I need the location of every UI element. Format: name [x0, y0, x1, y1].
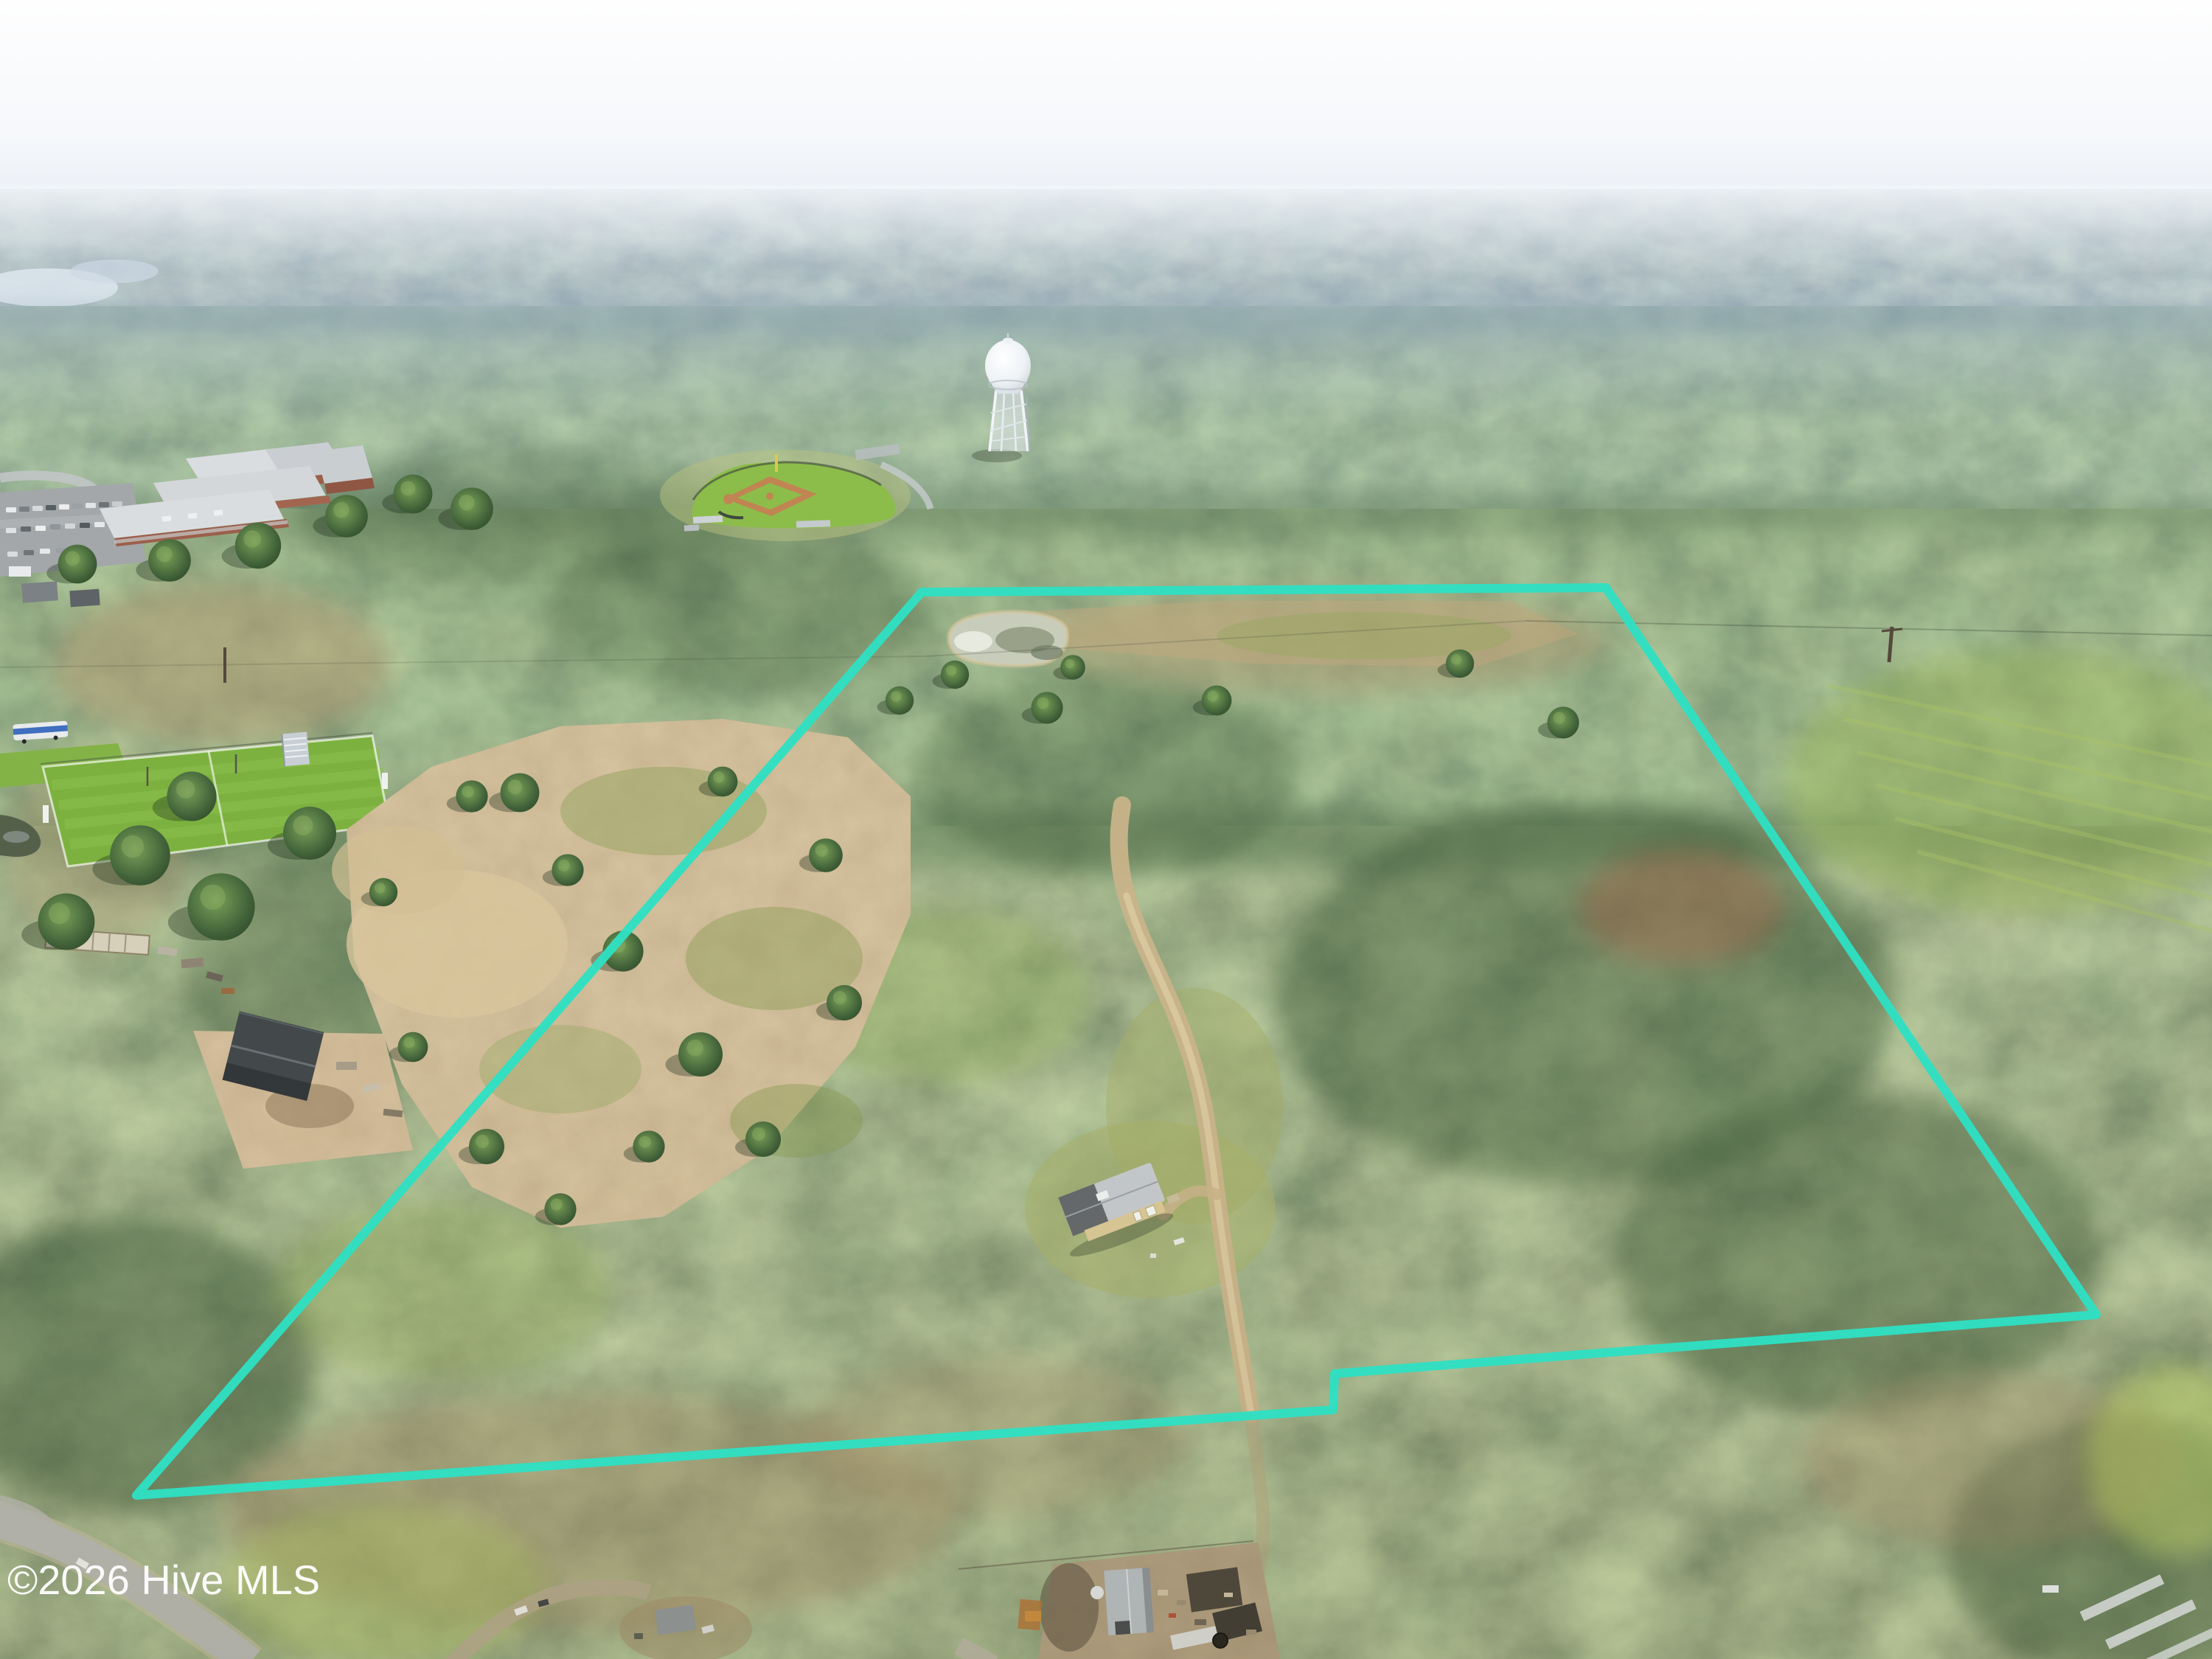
bleachers	[684, 524, 699, 531]
pitchers-mound	[766, 493, 773, 500]
watermark-text: ©2026 Hive MLS	[7, 1557, 320, 1603]
tower-cap	[1003, 338, 1013, 344]
dugout	[796, 520, 830, 528]
red-brown-patch	[1578, 848, 1784, 966]
goal	[43, 805, 49, 823]
horizon-haze	[0, 186, 2212, 274]
distant-clearing	[70, 260, 159, 283]
pond-reflection	[1031, 645, 1063, 660]
roof-vent	[214, 509, 223, 515]
tower-tank	[985, 340, 1031, 392]
pond-glint	[954, 631, 992, 652]
roof-vent	[188, 512, 198, 518]
aerial-photo: ©2026 Hive MLS	[0, 0, 2212, 1659]
dark-pine-stand	[914, 671, 1298, 877]
goal	[382, 773, 388, 789]
sand-patch	[332, 826, 465, 914]
home-plate-circle	[723, 494, 734, 504]
color-grade	[0, 1032, 2212, 1659]
band-blend	[0, 299, 2212, 338]
pond-glint	[3, 831, 29, 843]
property-pond	[949, 612, 1068, 666]
bleacher-stairs	[282, 732, 310, 767]
roof-vent	[162, 515, 172, 521]
gym-roof	[316, 445, 372, 484]
